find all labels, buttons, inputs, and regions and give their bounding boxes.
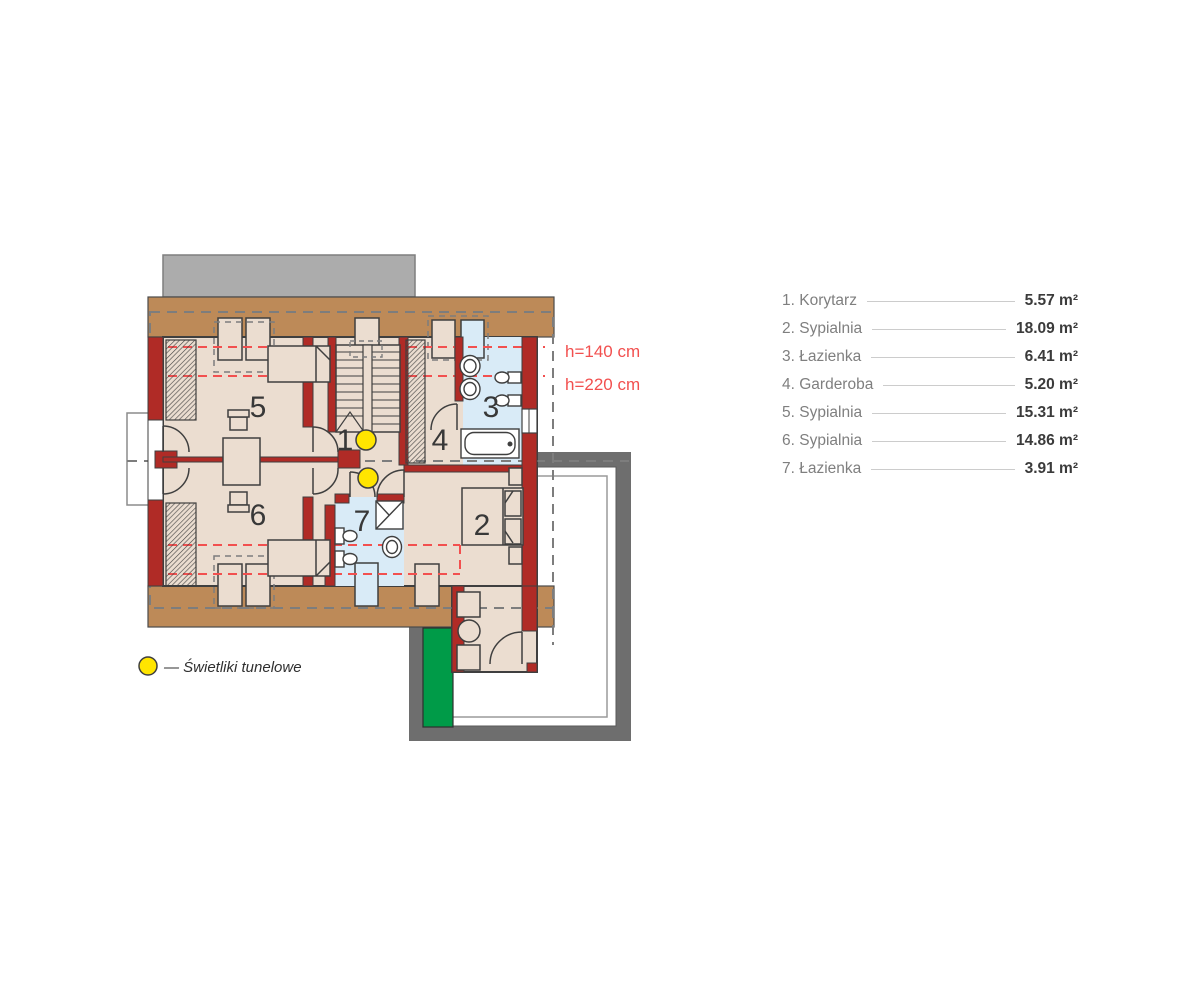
room-label-sypialnia5: 5: [250, 391, 267, 424]
window-right-wall: [522, 409, 537, 433]
bed-room6: [268, 540, 330, 576]
room-label-lazienka7: 7: [354, 505, 371, 538]
legend-row-6: 6. Sypialnia 14.86 m²: [782, 427, 1078, 455]
chimney-block: [163, 255, 415, 297]
legend-leader-line: [872, 329, 1006, 330]
legend-row-7: 7. Łazienka 3.91 m²: [782, 455, 1078, 483]
legend-room-area: 18.09 m²: [1016, 320, 1078, 338]
legend-row-3: 3. Łazienka 6.41 m²: [782, 343, 1078, 371]
staircase: [336, 341, 400, 432]
legend-row-1: 1. Korytarz 5.57 m²: [782, 287, 1078, 315]
legend-room-name: 7. Łazienka: [782, 460, 861, 478]
legend-leader-line: [883, 385, 1014, 386]
room-label-sypialnia6: 6: [250, 499, 267, 532]
legend-room-name: 1. Korytarz: [782, 292, 857, 310]
height-label-140: h=140 cm: [565, 342, 640, 361]
skylight-legend-dot: [139, 657, 157, 675]
legend-leader-line: [872, 413, 1006, 414]
bed-room5: [268, 346, 330, 382]
legend-room-name: 6. Sypialnia: [782, 432, 862, 450]
legend-room-name: 4. Garderoba: [782, 376, 873, 394]
floor-plan-page: 1 2 3 4 5 6 7 h=140 cm h=220 cm — Świetl…: [0, 0, 1200, 1000]
room-area-legend: 1. Korytarz 5.57 m² 2. Sypialnia 18.09 m…: [782, 287, 1078, 483]
legend-room-area: 14.86 m²: [1016, 432, 1078, 450]
legend-room-area: 6.41 m²: [1025, 348, 1078, 366]
legend-room-area: 15.31 m²: [1016, 404, 1078, 422]
skylight-dot-1: [356, 430, 376, 450]
nightstand-bottom: [509, 547, 522, 564]
floor-plan-drawing: 1 2 3 4 5 6 7 h=140 cm h=220 cm — Świetl…: [0, 0, 1200, 1000]
legend-leader-line: [867, 301, 1015, 302]
height-label-220: h=220 cm: [565, 375, 640, 394]
legend-room-name: 5. Sypialnia: [782, 404, 862, 422]
legend-leader-line: [871, 469, 1014, 470]
legend-row-5: 5. Sypialnia 15.31 m²: [782, 399, 1078, 427]
green-roof-strip: [423, 628, 453, 727]
bath3-bathtub: [461, 429, 519, 458]
legend-room-area: 3.91 m²: [1025, 460, 1078, 478]
left-balcony: [127, 413, 151, 505]
legend-row-4: 4. Garderoba 5.20 m²: [782, 371, 1078, 399]
room-label-lazienka3: 3: [483, 391, 500, 424]
room-label-garderoba4: 4: [432, 424, 449, 457]
skylight-dot-2: [358, 468, 378, 488]
legend-row-2: 2. Sypialnia 18.09 m²: [782, 315, 1078, 343]
skylight-legend: — Świetliki tunelowe: [139, 657, 302, 676]
nightstand-top: [509, 468, 522, 485]
room-label-sypialnia2: 2: [474, 509, 491, 542]
legend-room-area: 5.20 m²: [1025, 376, 1078, 394]
skylight-legend-label: — Świetliki tunelowe: [163, 658, 302, 676]
room-label-korytarz: 1: [337, 424, 354, 457]
legend-room-name: 2. Sypialnia: [782, 320, 862, 338]
bath3-toilet: [495, 372, 521, 383]
bath7-sink: [383, 537, 402, 558]
legend-leader-line: [871, 357, 1014, 358]
alcove-chairs-table: [457, 592, 480, 670]
legend-room-area: 5.57 m²: [1025, 292, 1078, 310]
bath7-shower: [376, 501, 403, 529]
legend-room-name: 3. Łazienka: [782, 348, 861, 366]
legend-leader-line: [872, 441, 1006, 442]
